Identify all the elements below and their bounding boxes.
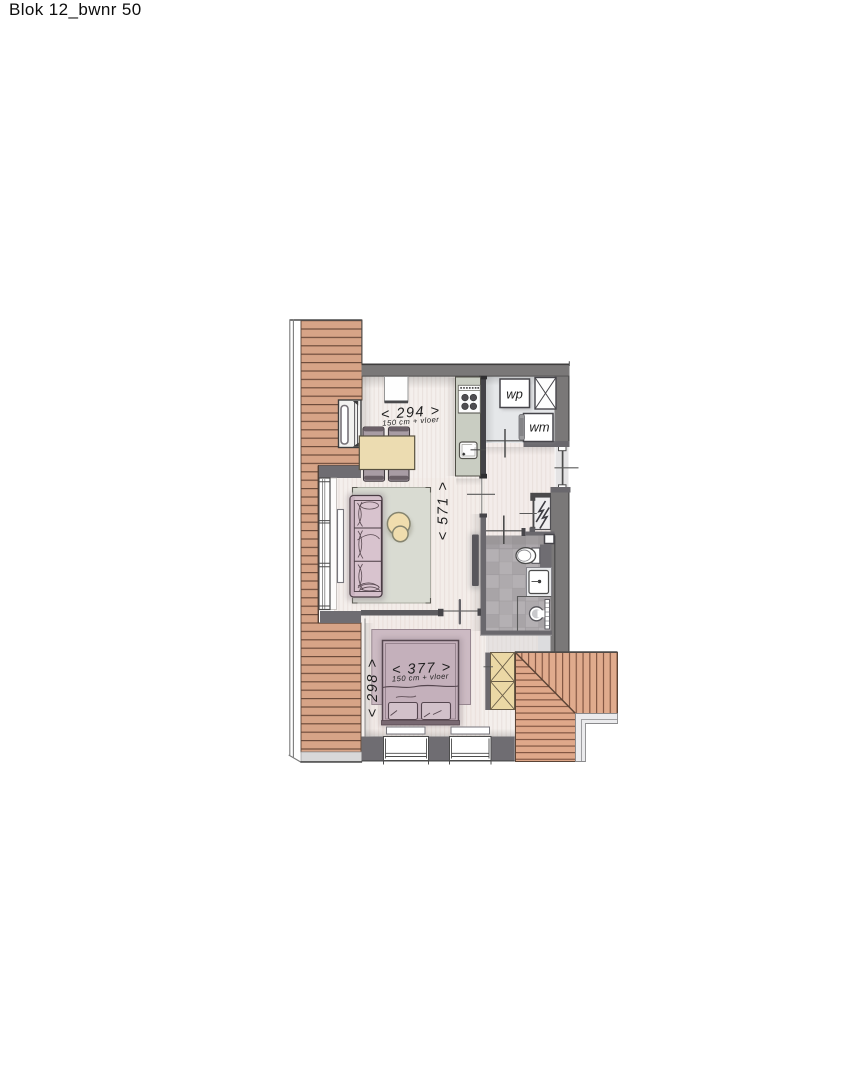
svg-text:< 571 >: < 571 >	[436, 481, 452, 541]
svg-text:< 298 >: < 298 >	[365, 658, 381, 718]
svg-text:wp: wp	[506, 387, 523, 402]
svg-text:wm: wm	[529, 420, 549, 435]
